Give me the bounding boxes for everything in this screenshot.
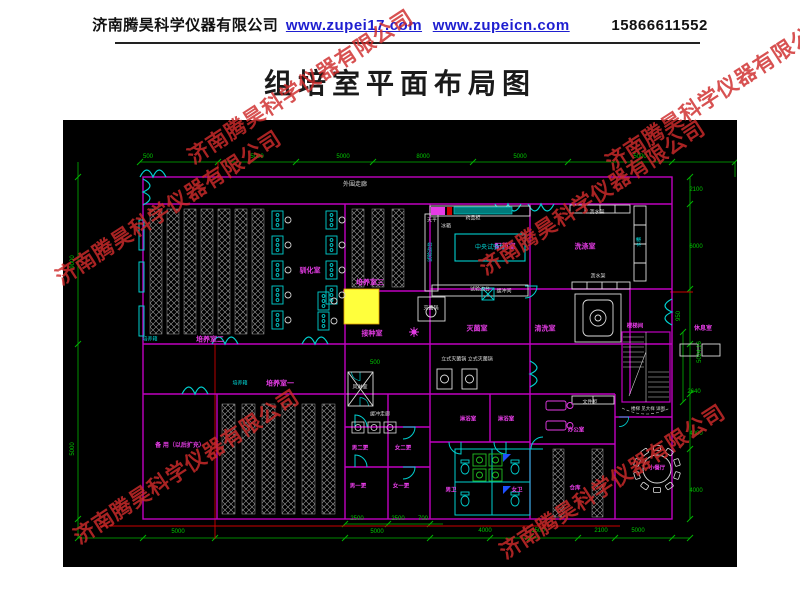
dimension-label: 700 [418, 516, 428, 522]
link-zupeicn[interactable]: www.zupeicn.com [433, 17, 570, 34]
equipment-label: 中央试验台 [475, 245, 505, 251]
room-label: 淋浴室 [498, 417, 515, 423]
dimension-label: 1500 [531, 528, 544, 534]
room-label: 驯化室 [300, 268, 321, 275]
sterilizers [437, 369, 477, 389]
dimension-label: 5000 [336, 154, 349, 160]
header-bar: 济南腾昊科学仪器有限公司 www.zupei17.com www.zupeicn… [0, 14, 800, 35]
company-name: 济南腾昊科学仪器有限公司 [92, 17, 278, 34]
link-zupei17[interactable]: www.zupei17.com [286, 17, 422, 34]
dimension-label: 6000 [689, 244, 702, 250]
toilet-block [455, 449, 530, 515]
equipment-label: 灭菌锅 [423, 307, 438, 312]
equipment-label: 文件柜 [582, 401, 597, 406]
dimension-label: 4000 [689, 431, 702, 437]
equipment-label: 楼梯 见大样 详图 [631, 407, 665, 412]
room-label: 小餐厅 [649, 466, 666, 472]
room-label: 灭菌室 [467, 326, 488, 333]
equipment-label: 缓冲走廊 [370, 413, 390, 418]
dimension-label: 8000 [416, 154, 429, 160]
dimension-label: 2100 [594, 528, 607, 534]
equipment-label: 天平 [427, 219, 437, 224]
dimension-label: 5000 [370, 529, 383, 535]
bench-cabinets [431, 207, 512, 215]
fan-icon [409, 327, 419, 337]
partition-marks [503, 454, 511, 494]
room-label: 清洗室 [535, 326, 556, 333]
equipment-label: 水槽 [638, 237, 643, 247]
equipment-label: 缓冲间 [496, 290, 511, 295]
room-label: 楼梯间 [627, 324, 644, 330]
room-label: 男卫 [445, 488, 456, 494]
room-label: 女一更 [393, 484, 410, 490]
dimension-label: 5000 [250, 154, 263, 160]
room-label: 淋浴室 [460, 417, 477, 423]
equipment-label: 沥水架 [589, 211, 604, 216]
dimension-label: 2640 [687, 389, 700, 395]
dimension-label: 5000 [631, 528, 644, 534]
room-label: 女卫 [511, 488, 522, 494]
dimension-label: 5000 [513, 154, 526, 160]
phone-number: 15866611552 [611, 17, 707, 34]
room-label: 接种室 [362, 331, 383, 338]
equipment-label: 风淋室 [352, 386, 367, 391]
dimension-label: 2500 [350, 516, 363, 522]
dimension-label: 4000 [689, 488, 702, 494]
room-label: 女二更 [395, 446, 412, 452]
equipment-label: 试验边台 [470, 288, 490, 293]
dimension-label: 950 [676, 311, 682, 321]
dimension-label: 500 [143, 154, 153, 160]
room-label: 仓库 [569, 486, 580, 492]
floorplan-canvas: 外围走廊驯化室培养室三接种室培养室二培养室一配药室洗涤室灭菌室清洗室休息室楼梯间… [63, 120, 737, 567]
dimension-label: 5000 [70, 442, 76, 455]
room-label: 培养室三 [356, 280, 384, 287]
dimension-label: 500 [370, 360, 380, 366]
room-label: 男一更 [350, 484, 367, 490]
equipment-label: 培养箱 [232, 382, 247, 387]
dimension-label: 2100 [689, 187, 702, 193]
highlight-box [344, 289, 379, 324]
room-label: 备 用（以后扩充） [155, 443, 205, 449]
equipment-label: 药品柜 [465, 217, 480, 222]
dimension-label: 5024.16 [697, 341, 703, 363]
equipment-label: 立式灭菌锅 立式灭菌锅 [441, 358, 492, 363]
room-label: 培养室一 [266, 381, 294, 388]
dimension-label: 2500 [391, 516, 404, 522]
equipment-label: 沥水架 [590, 275, 605, 280]
room-label: 培养室二 [196, 337, 224, 344]
page-title: 组培室平面布局图 [0, 62, 800, 102]
room-label: 办公室 [568, 428, 585, 434]
equipment-label: 培养箱 [142, 338, 157, 343]
room-label: 男二更 [352, 446, 369, 452]
floorplan-drawing [63, 120, 737, 567]
dimension-label: 4000 [478, 528, 491, 534]
room-label: 外围走廊 [343, 182, 367, 188]
dimension-label: 5000 [633, 154, 646, 160]
equipment-label: 试验边台 [429, 242, 434, 262]
room-label: 洗涤室 [575, 244, 596, 251]
header-divider [115, 42, 700, 44]
office-desks [546, 401, 573, 430]
dimension-label: 9000 [70, 255, 76, 268]
room-label: 休息室 [694, 326, 712, 332]
dimension-label: 5000 [171, 529, 184, 535]
equipment-label: 冰箱 [441, 225, 451, 230]
